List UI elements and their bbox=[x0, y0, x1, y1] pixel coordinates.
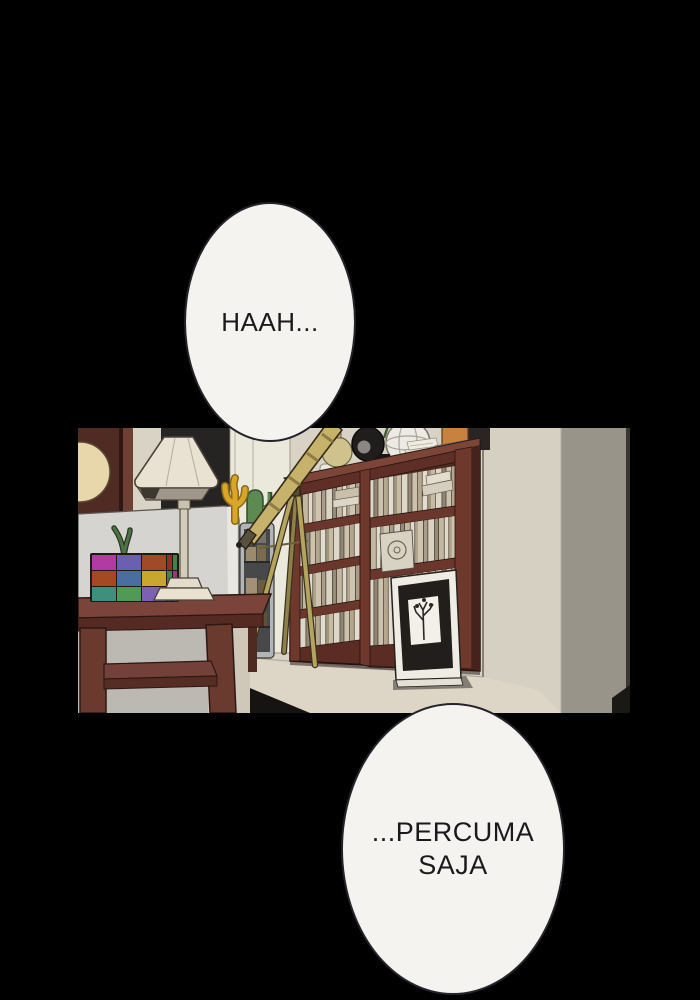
lamp-base bbox=[166, 578, 202, 588]
room-illustration bbox=[78, 428, 630, 713]
speech-bubble-2: ...PERCUMA SAJA bbox=[341, 703, 565, 995]
speech-text-2: ...PERCUMA SAJA bbox=[372, 816, 535, 882]
comic-page: HAAH... ...PERCUMA SAJA bbox=[0, 0, 700, 1000]
corner-wall-gray bbox=[561, 428, 630, 713]
speech-text-1: HAAH... bbox=[221, 306, 318, 339]
speech-bubble-1: HAAH... bbox=[184, 202, 356, 442]
panel-illustration bbox=[78, 428, 630, 713]
corner-wall-light bbox=[483, 428, 561, 713]
side-table bbox=[78, 594, 271, 713]
speech-text-2-line1: ...PERCUMA bbox=[372, 816, 535, 849]
speech-text-2-line2: SAJA bbox=[372, 849, 535, 882]
display-book-with-emblem bbox=[380, 530, 414, 572]
